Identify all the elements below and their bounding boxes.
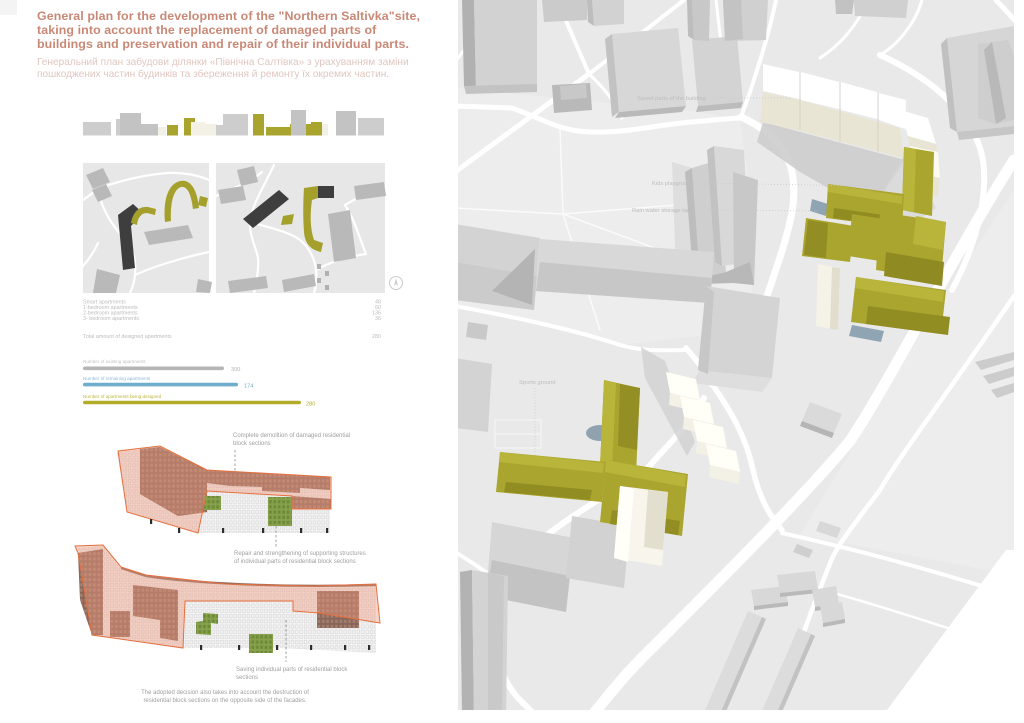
svg-text:Repair and strengthening of su: Repair and strengthening of supporting s… [234,551,366,557]
svg-text:Saving individual parts of res: Saving individual parts of residential b… [236,667,348,673]
svg-text:280: 280 [306,402,315,408]
svg-text:sections: sections [236,675,258,681]
svg-text:280: 280 [372,334,381,340]
svg-text:Number of existing apartments: Number of existing apartments [83,359,146,364]
svg-text:Number of apartments being des: Number of apartments being designed [83,394,162,399]
svg-text:Rain water storage tank: Rain water storage tank [632,208,693,214]
svg-text:The adopted decision also take: The adopted decision also takes into acc… [141,690,309,696]
svg-text:300: 300 [231,367,240,373]
svg-text:174: 174 [244,384,253,390]
svg-text:of individual parts of residen: of individual parts of residential block… [234,559,356,565]
svg-text:Number of remaining apartments: Number of remaining apartments [83,376,151,381]
svg-text:residential block sections on: residential block sections on the opposi… [143,698,306,704]
svg-text:Complete demolition of damaged: Complete demolition of damaged residenti… [233,433,350,439]
svg-text:3- bedroom apartments: 3- bedroom apartments [83,316,139,322]
svg-text:Kids playground: Kids playground [652,181,694,187]
svg-text:Total amount of designed apart: Total amount of designed apartments [83,334,172,340]
svg-text:Saved parts of the building: Saved parts of the building [637,96,706,102]
svg-text:Sports ground: Sports ground [519,380,555,386]
svg-text:block sections: block sections [233,441,271,447]
svg-text:36: 36 [375,316,381,322]
